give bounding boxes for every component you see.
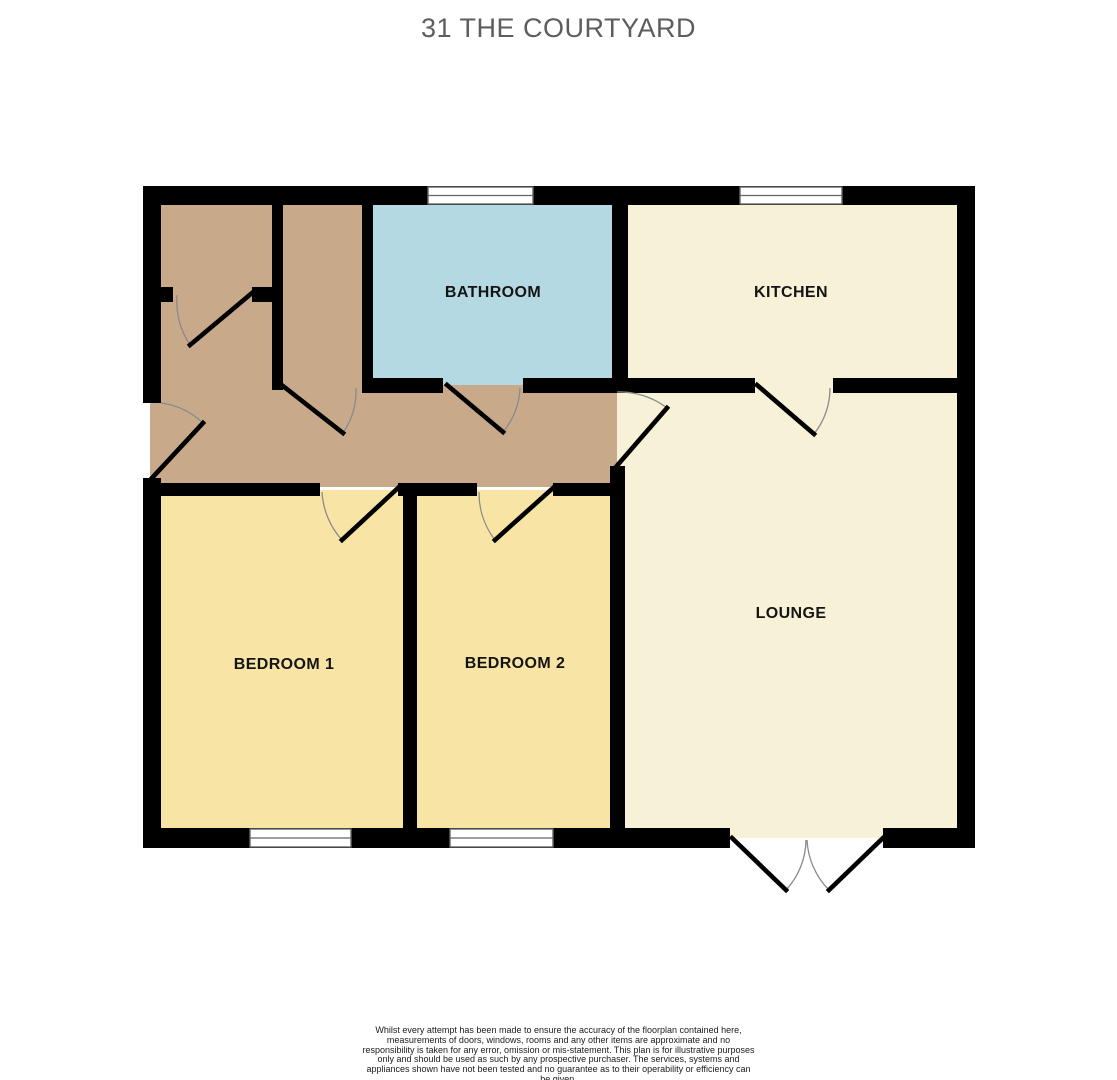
kitchen-window: [740, 187, 842, 204]
kitchen-label: KITCHEN: [754, 284, 828, 302]
floorplan-drawing: [0, 0, 1117, 1080]
patio-door-right-arc: [807, 840, 829, 890]
wall-bedroom-divider: [403, 483, 417, 828]
bedroom-1-window: [250, 829, 351, 847]
bedroom-2-label: BEDROOM 2: [465, 655, 566, 673]
patio-door-left-arc: [786, 840, 806, 890]
patio-door-left-leaf: [732, 838, 786, 890]
wall-closet-stub-right: [252, 287, 283, 302]
floorplan-page: 31 THE COURTYARD: [0, 0, 1117, 1080]
wall-bathroom-bottom-right: [523, 378, 755, 393]
wall-top: [143, 186, 975, 205]
wall-lounge-left: [610, 466, 625, 828]
wall-left-lower: [143, 478, 161, 848]
bedroom-2-window: [450, 829, 553, 847]
disclaimer-text: Whilst every attempt has been made to en…: [361, 1026, 756, 1080]
bedroom-1-label: BEDROOM 1: [234, 656, 335, 674]
bathroom-label: BATHROOM: [445, 284, 541, 302]
wall-closet-stub-left: [155, 287, 173, 302]
wall-bathroom-bottom-left: [362, 378, 443, 393]
wall-right: [957, 186, 975, 848]
wall-bedroom1-top: [143, 483, 320, 496]
wall-kitchen-bottom-right: [833, 378, 957, 393]
bathroom-window: [428, 187, 533, 204]
patio-door-right-leaf: [829, 838, 883, 890]
footer: Whilst every attempt has been made to en…: [361, 1026, 756, 1080]
lounge-label: LOUNGE: [756, 605, 827, 623]
wall-bathroom-left: [362, 200, 373, 383]
wall-bottom-left: [143, 828, 730, 848]
wall-bathroom-kitchen-divider: [612, 200, 628, 383]
